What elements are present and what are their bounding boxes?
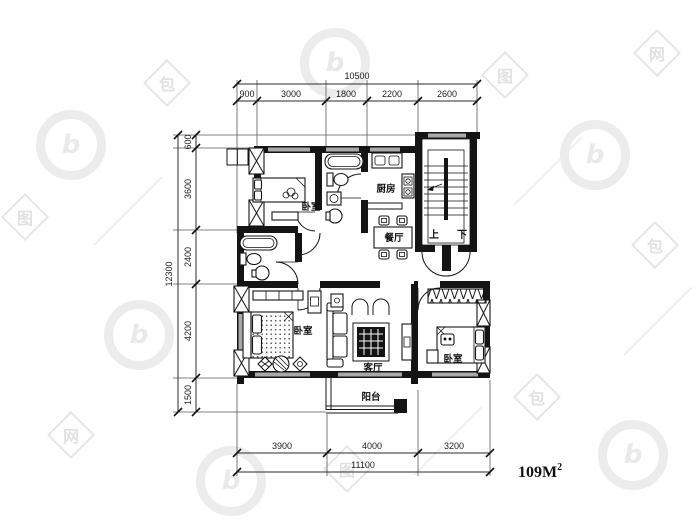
- room-living: 客厅: [327, 294, 412, 374]
- stove-icon: [402, 174, 414, 198]
- dim-bottom-seg: 3200: [444, 441, 464, 451]
- dim-top-seg: 1800: [336, 89, 356, 99]
- balcony-railing-bottom: [326, 406, 398, 413]
- dim-bottom-seg: 3900: [272, 441, 292, 451]
- ottoman-icon: [273, 356, 289, 372]
- area-label: 109M2: [518, 462, 562, 481]
- armchair-icon: [352, 299, 368, 315]
- dim-bottom-seg: 4000: [362, 441, 382, 451]
- armchair-icon: [373, 299, 389, 315]
- dim-top-total: 10500: [344, 71, 369, 81]
- duct-platform: [227, 149, 248, 165]
- bathtub-icon: [325, 154, 363, 169]
- room-bedroom-master: 卧室: [243, 291, 321, 372]
- sofa-icon: [327, 303, 347, 367]
- toilet-icon: [327, 173, 348, 186]
- kitchen-counter: [365, 203, 402, 209]
- balcony-pier: [394, 399, 407, 413]
- side-table-icon: [331, 294, 343, 307]
- dining-chair-icon: [379, 250, 389, 259]
- floor-plan-canvas: 10500 900 3000 1800 2200 2600 12300 600 …: [0, 0, 700, 527]
- toilet-icon: [240, 253, 261, 265]
- bed-icon: [253, 178, 305, 202]
- cabinet-icon: [253, 291, 303, 300]
- wardrobe-icon: [428, 289, 486, 303]
- sink-icon: [326, 209, 342, 223]
- room-label-kitchen: 厨房: [376, 183, 395, 195]
- dimension-top: 10500 900 3000 1800 2200 2600: [233, 71, 481, 105]
- balcony-railing-left: [326, 378, 331, 410]
- room-label-bedroom-right: 卧室: [443, 353, 463, 365]
- decor-icon: [441, 334, 454, 345]
- bathtub-icon: [240, 236, 277, 250]
- dim-left-seg: 3600: [183, 179, 193, 199]
- ottoman-icon: [293, 357, 307, 371]
- dim-left-seg: 1500: [183, 385, 193, 405]
- room-bath-mid: [240, 236, 277, 280]
- room-label-bedroom-master: 卧室: [293, 325, 313, 337]
- stair-direction-arrow: [427, 184, 442, 191]
- tv-stand-icon: [402, 324, 412, 360]
- dining-chair-icon: [397, 216, 407, 225]
- column-icon: [477, 300, 490, 326]
- room-dining: 餐厅: [374, 216, 412, 259]
- room-label-living: 客厅: [362, 362, 383, 374]
- dimension-bottom: 3900 4000 3200 11100: [233, 441, 494, 476]
- dim-top-seg: 2600: [437, 89, 457, 99]
- column-icon: [234, 286, 249, 312]
- room-bath-top: [325, 154, 363, 223]
- tv-cabinet-icon: [308, 291, 321, 313]
- dim-top-seg: 3000: [281, 89, 301, 99]
- bench-icon: [272, 212, 298, 220]
- door-arc: [276, 262, 298, 284]
- side-table-icon: [427, 350, 438, 363]
- room-label-dining: 餐厅: [383, 232, 404, 244]
- dim-top-seg: 900: [239, 89, 254, 99]
- room-label-bedroom-top: 卧室: [301, 201, 321, 213]
- door-arc: [296, 212, 315, 231]
- dim-left-seg: 2400: [183, 247, 193, 267]
- dimension-left: 12300 600 3600 2400 4200 1500: [164, 131, 200, 416]
- dim-left-seg: 600: [183, 134, 193, 149]
- room-kitchen: 厨房: [365, 153, 414, 209]
- washer-icon: [327, 192, 341, 205]
- room-label-balcony: 阳台: [361, 391, 381, 403]
- stair-up-label: 上: [429, 228, 439, 241]
- stair-rail: [444, 158, 448, 220]
- room-balcony: 阳台: [326, 378, 407, 413]
- staircase: 上 下: [422, 139, 470, 245]
- column-icon: [249, 148, 264, 174]
- stair-down-label: 下: [457, 229, 467, 241]
- dim-left-total: 12300: [164, 261, 174, 286]
- column-icon: [249, 200, 264, 226]
- double-bed-icon: [243, 312, 293, 358]
- dim-bottom-total: 11100: [351, 460, 375, 470]
- dining-chair-icon: [379, 216, 389, 225]
- rug-icon: [353, 323, 389, 361]
- sink-icon: [252, 266, 269, 280]
- dim-top-seg: 2200: [382, 89, 402, 99]
- room-bedroom-right: 卧室: [427, 289, 486, 365]
- dining-chair-icon: [397, 250, 407, 259]
- floor-plan-page: b b b b b b 图 包 图 网 包 网 图 包: [0, 0, 700, 527]
- dim-left-seg: 4200: [183, 321, 193, 341]
- kitchen-sink-icon: [372, 153, 402, 168]
- ottoman-icon: [258, 357, 272, 371]
